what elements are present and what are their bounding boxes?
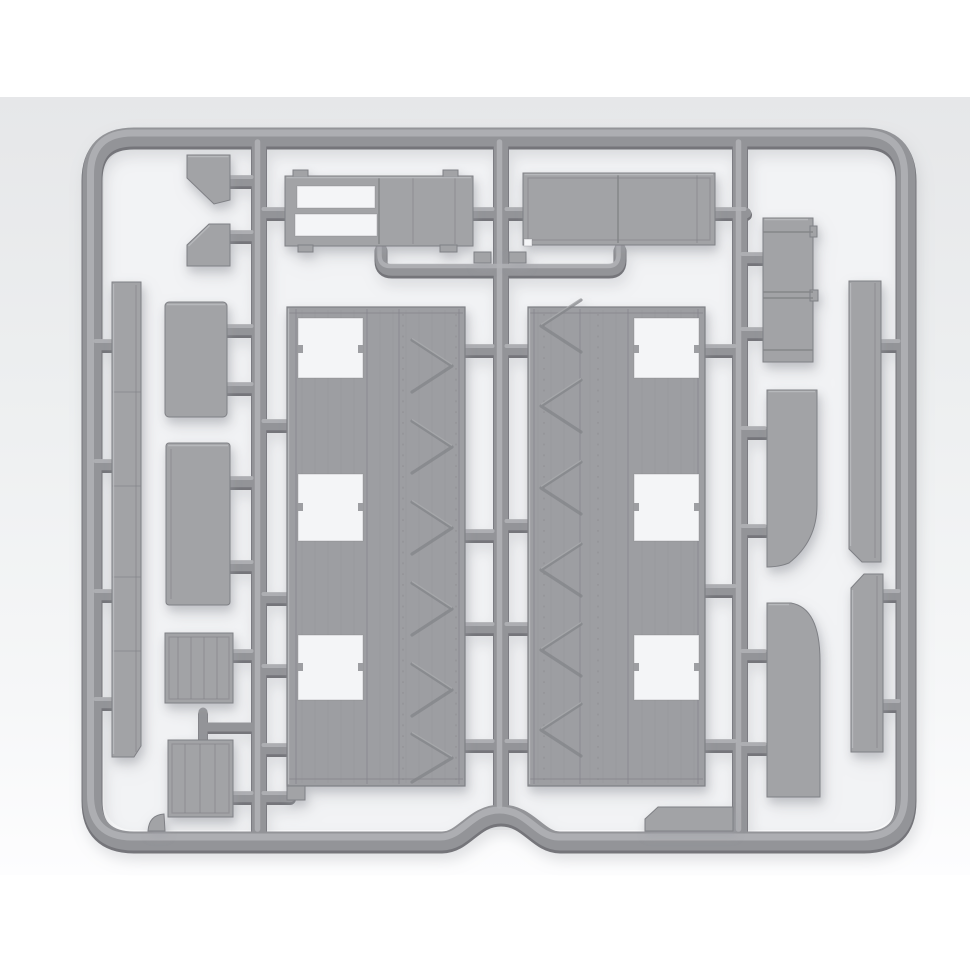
window-opening xyxy=(634,474,699,541)
part-step-plate xyxy=(645,807,733,831)
window-opening xyxy=(298,474,363,541)
window-opening xyxy=(298,635,363,700)
part-door-panel xyxy=(166,443,230,605)
window-opening xyxy=(634,635,699,700)
flatbed-tab xyxy=(293,170,308,177)
part-small-panel xyxy=(165,302,227,417)
part-right-sill-lower xyxy=(851,574,883,752)
flatbed-tab xyxy=(443,170,458,177)
gate-tab-right xyxy=(509,252,526,263)
part-crate-large xyxy=(168,740,233,817)
part-crate-small xyxy=(165,633,233,703)
window-opening xyxy=(298,318,363,378)
part-flatbed-frame xyxy=(285,170,473,252)
part-right-sill-upper xyxy=(849,281,881,562)
flatbed-tab xyxy=(440,245,457,252)
flatbed-tab xyxy=(298,245,313,252)
panel-foot-tab xyxy=(287,786,305,800)
window-opening xyxy=(634,318,699,378)
part-wagon-side-right xyxy=(528,299,705,787)
photo-stage xyxy=(0,0,970,971)
part-wagon-side-left xyxy=(287,307,465,800)
part-left-sill-strip xyxy=(112,282,141,757)
gate-tab-left xyxy=(474,252,491,263)
flatbed-slot xyxy=(297,186,375,208)
part-stacked-boxes xyxy=(763,218,818,362)
flatbed-slot xyxy=(295,214,377,236)
sprue-photo xyxy=(0,0,970,971)
part-roof-panel xyxy=(523,173,715,246)
part-fender-lower xyxy=(767,603,820,797)
